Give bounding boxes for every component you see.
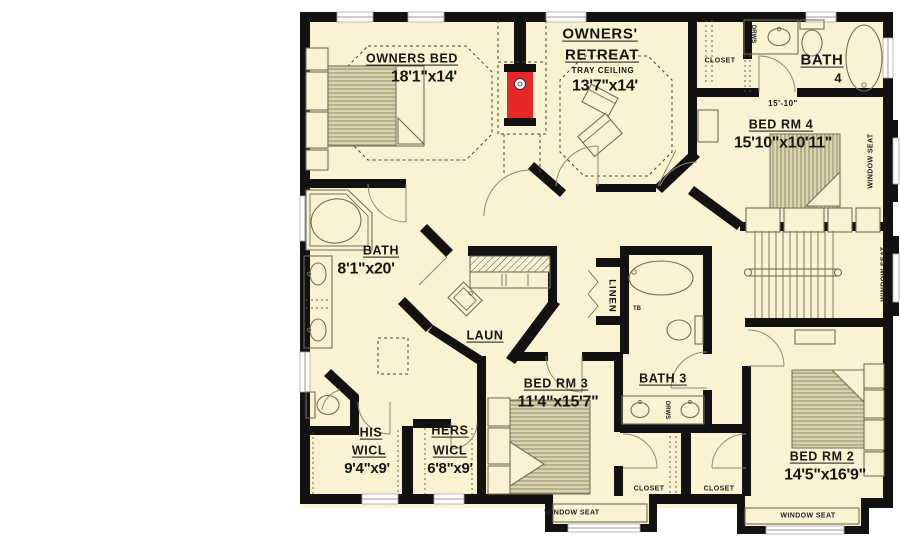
owners-bed-dims: 18'1"x14' (391, 70, 457, 87)
bedrm4-dims: 15'10"x10'11" (734, 136, 832, 153)
his-wicl-name-2: WICL (352, 443, 386, 460)
owners-retreat-name-1: OWNERS' (562, 27, 637, 44)
hers-wicl-name-1: HERS (431, 423, 468, 440)
bath3-name: BATH 3 (639, 371, 687, 388)
hers-wicl-name-2: WICL (433, 443, 467, 460)
bedrm2-name: BED RM 2 (790, 449, 855, 466)
bedrm3-name: BED RM 3 (524, 376, 589, 393)
bedrm4-width-dim: 15'-10" (768, 100, 798, 108)
tb-label: TB (633, 306, 641, 312)
closet-label-left: CLOSET (634, 485, 665, 492)
bedrm2-dims: 14'5"x16'9" (784, 468, 866, 485)
linen-name: LINEN (605, 279, 622, 313)
window-seat-label-right-2: WINDOW SEAT (880, 246, 887, 301)
drws-label-bath3: DRWS (664, 401, 670, 419)
his-wicl-dims: 9'4"x9' (344, 461, 390, 477)
bedrm3-furniture (488, 398, 590, 494)
owners-bed-name: OWNERS BED (366, 51, 458, 68)
closet-label-right: CLOSET (704, 485, 735, 492)
floorplan-page: OWNERS BED 18'1"x14' OWNERS' RETREAT TRA… (0, 0, 900, 546)
window-seat-label-bottom-1: WINDOW SEAT (544, 509, 599, 516)
window-seat-label-bottom-2: WINDOW SEAT (780, 512, 835, 519)
his-wicl-name-1: HIS (360, 425, 383, 442)
bath4-number: 4 (834, 71, 841, 88)
window-seat-label-right-1: WINDOW SEAT (867, 133, 874, 188)
owners-bath-dims: 8'1"x20' (337, 262, 394, 279)
drws-label-bath4: DRWS (750, 25, 756, 43)
owners-bath-name: BATH (363, 243, 399, 260)
closet-label-top: CLOSET (705, 57, 736, 64)
owners-retreat-name-2: RETREAT (565, 48, 639, 65)
bath4-name: BATH (801, 53, 844, 70)
hers-wicl-dims: 6'8"x9' (427, 461, 473, 477)
bedrm4-name: BED RM 4 (749, 117, 814, 134)
laundry-name: LAUN (466, 328, 503, 345)
bedrm3-dims: 11'4"x15'7" (518, 395, 599, 412)
owners-retreat-dims: 13'7"x14' (572, 79, 638, 96)
owners-retreat-note: TRAY CEILING (572, 67, 635, 75)
